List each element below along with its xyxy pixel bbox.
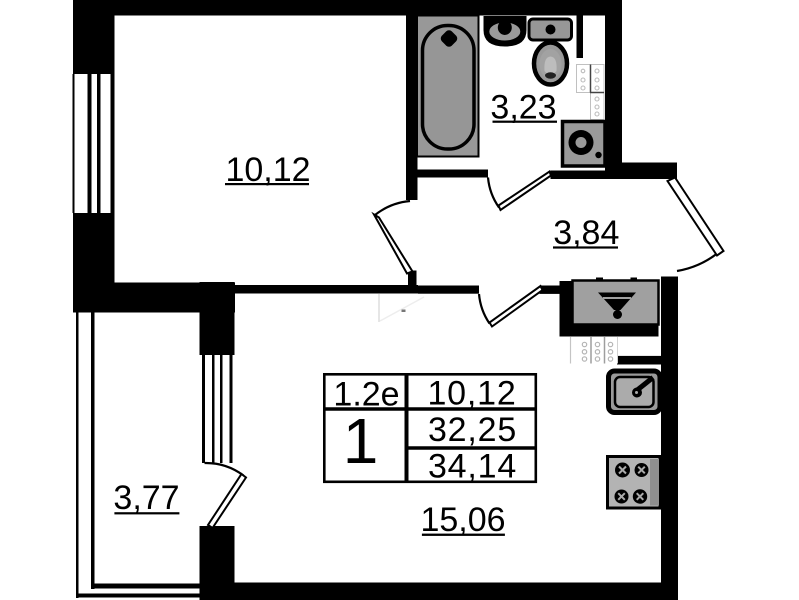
svg-text:34,14: 34,14	[428, 448, 517, 486]
svg-text:10,12: 10,12	[427, 375, 516, 413]
svg-text:32,25: 32,25	[428, 411, 517, 449]
svg-text:1: 1	[343, 405, 379, 477]
svg-text:15,06: 15,06	[420, 501, 505, 539]
svg-text:3,77: 3,77	[113, 479, 179, 517]
svg-text:3,84: 3,84	[553, 214, 619, 252]
